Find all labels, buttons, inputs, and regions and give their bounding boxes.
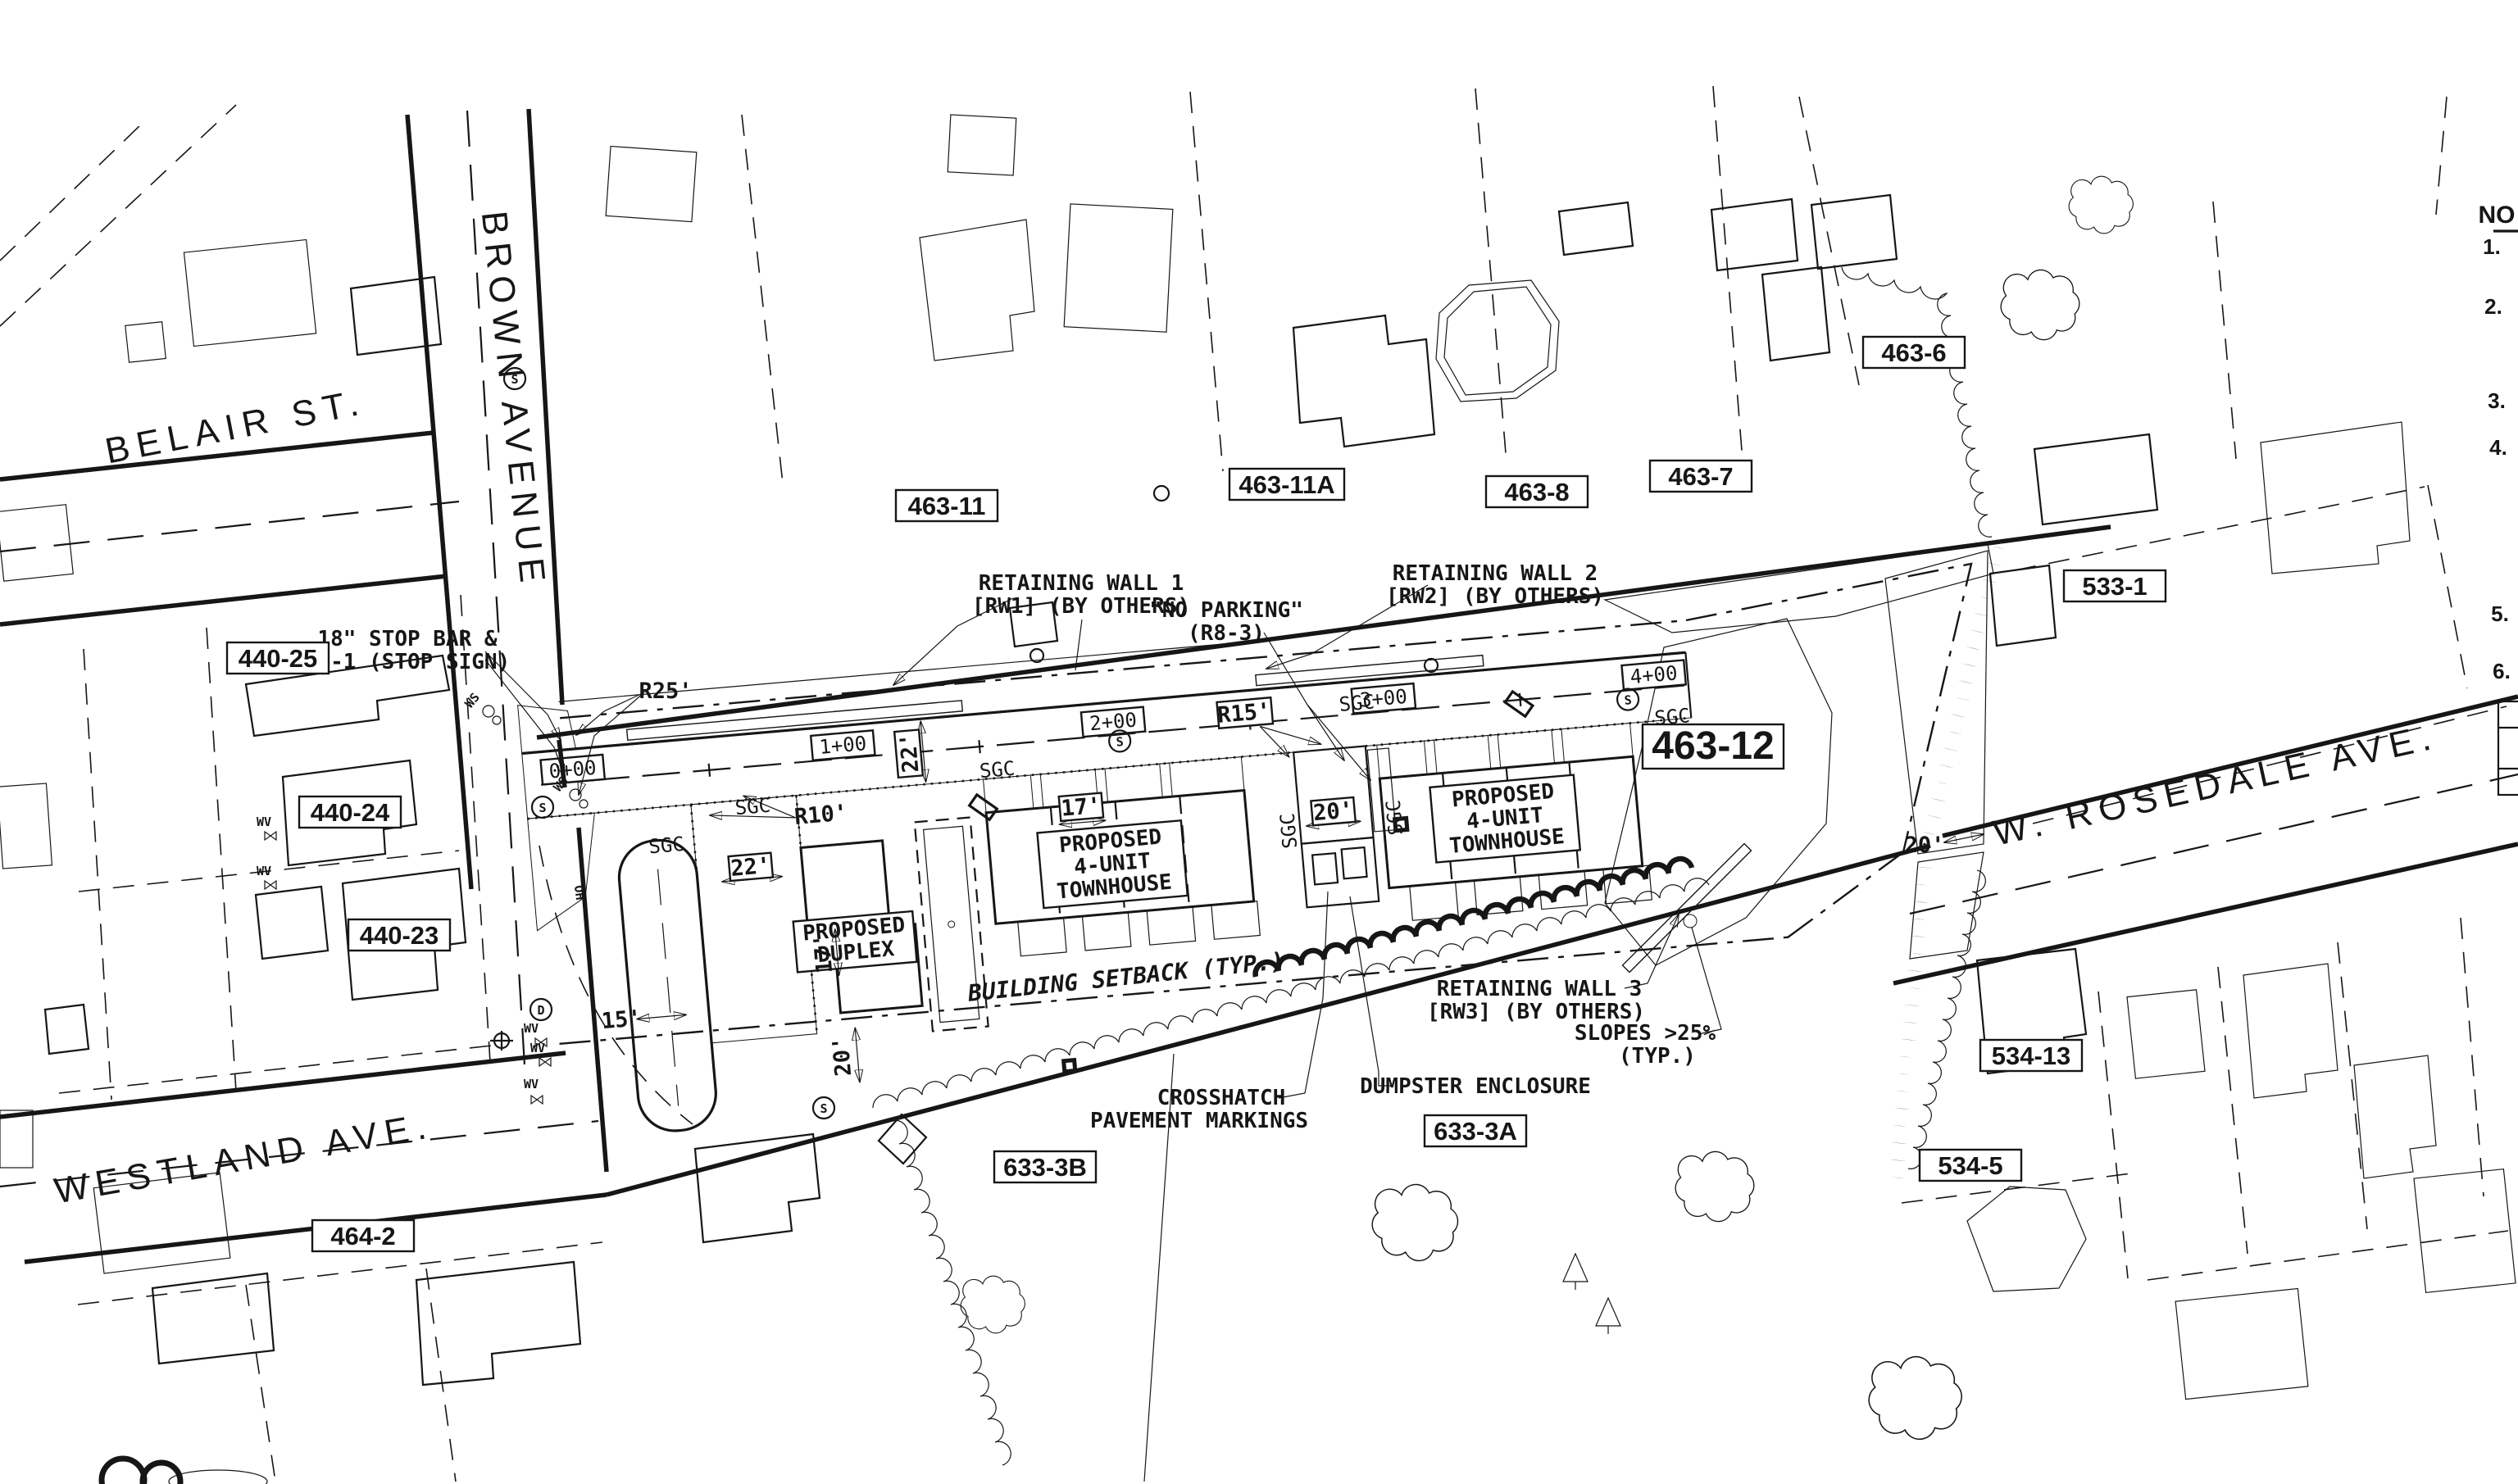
dim-duplex-drive: 17' (809, 933, 838, 974)
parcel-label-463-6: 463-6 (1863, 337, 1965, 368)
svg-text:463-8: 463-8 (1504, 478, 1569, 506)
dumpster-enclosure (1302, 837, 1379, 907)
svg-text:WV: WV (524, 1077, 539, 1091)
note-4: 4. (2489, 435, 2507, 460)
existing-buildings (0, 115, 2516, 1400)
hatched-buildings (45, 195, 2157, 1385)
parcel-label-440-25: 440-25 (227, 642, 329, 674)
parcel-label-534-5: 534-5 (1920, 1150, 2021, 1181)
dim-island-width: 15' (601, 1005, 643, 1034)
parcel-label-534-13: 534-13 (1980, 1040, 2082, 1071)
stop-bar-callout: 18" STOP BAR & R1-1 (STOP SIGN) (305, 627, 565, 787)
dim-crosshatch-width: 20' (1312, 797, 1354, 826)
svg-text:WV: WV (257, 864, 271, 878)
s-manhole-1: S (511, 372, 518, 387)
svg-text:534-5: 534-5 (1938, 1151, 2002, 1180)
s-manhole-4: S (539, 801, 546, 815)
svg-text:440-25: 440-25 (239, 644, 318, 673)
hydrant (490, 1031, 513, 1051)
sgc-2: SGC (648, 833, 685, 859)
sgc-3: SGC (979, 757, 1016, 783)
note-5: 5. (2491, 601, 2509, 626)
bead-chain (1895, 547, 1998, 1190)
parcel-label-633-3b: 633-3B (994, 1151, 1096, 1182)
stop-bar-line2: R1-1 (STOP SIGN) (305, 650, 510, 674)
street-brown: BROWN AVENUE (474, 209, 553, 592)
parcel-label-533-1: 533-1 (2064, 570, 2166, 601)
dumpster-label: DUMPSTER ENCLOSURE (1360, 1074, 1591, 1099)
stop-bar-line1: 18" STOP BAR & (317, 627, 497, 651)
svg-text:WS: WS (461, 690, 482, 710)
slopes-line2: (TYP.) (1619, 1044, 1696, 1069)
parcel-label-440-23: 440-23 (348, 919, 450, 951)
rw2-line1: RETAINING WALL 2 (1393, 561, 1598, 586)
rw2-line2: [RW2] (BY OTHERS) (1386, 584, 1604, 609)
dim-drive-width: 22' (895, 732, 924, 774)
radius-r15: R15' (1216, 698, 1271, 728)
water-service-1: WS (461, 690, 501, 724)
parcel-label-463-11a: 463-11A (1229, 469, 1344, 500)
parcel-label-464-2: 464-2 (312, 1220, 414, 1251)
street-belair: BELAIR ST. (102, 382, 369, 472)
note-1: 1. (2483, 234, 2501, 259)
crosshatch-line2: PAVEMENT MARKINGS (1090, 1109, 1308, 1133)
station-2: 2+00 (1089, 709, 1138, 736)
note-6: 6. (2493, 659, 2511, 683)
svg-text:463-12: 463-12 (1652, 724, 1774, 768)
svg-text:463-6: 463-6 (1881, 338, 1946, 367)
rw3-line1: RETAINING WALL 3 (1437, 977, 1642, 1001)
crosshatch-line1: CROSSHATCH (1157, 1086, 1286, 1110)
svg-text:463-11A: 463-11A (1239, 470, 1334, 499)
building-setback-label: BUILDING SETBACK (TYP.) (966, 947, 1285, 1007)
svg-text:534-13: 534-13 (1992, 1042, 2071, 1070)
no-parking-line2: (R8-3) (1188, 621, 1265, 646)
svg-text:464-2: 464-2 (330, 1222, 395, 1250)
station-1: 1+00 (818, 732, 867, 759)
parcel-label-633-3a: 633-3A (1425, 1115, 1526, 1146)
no-parking-line1: "NO PARKING" (1149, 598, 1303, 623)
svg-text:463-11: 463-11 (908, 492, 986, 520)
dim-duplex-setback: 20' (828, 1035, 857, 1077)
station-4: 4+00 (1629, 661, 1679, 688)
street-westland: WESTLAND AVE. (52, 1105, 437, 1212)
s-manhole-5: S (820, 1101, 827, 1116)
note-2: 2. (2484, 294, 2502, 319)
slopes-line1: SLOPES >25% (1575, 1021, 1716, 1046)
oh-line-label: OH (571, 884, 588, 901)
parcel-label-463-11: 463-11 (896, 490, 998, 521)
dim-east-setback: 20' (1905, 833, 1945, 858)
legend-table (2498, 701, 2518, 795)
svg-text:533-1: 533-1 (2082, 572, 2147, 601)
parcel-label-463-7: 463-7 (1650, 461, 1752, 492)
note-3: 3. (2488, 388, 2506, 413)
svg-text:WV: WV (257, 815, 271, 829)
street-rosedale: W. ROSEDALE AVE. (1989, 716, 2441, 854)
s-manhole-3: S (1624, 692, 1633, 708)
crosshatch-pavement-area (1293, 746, 1373, 843)
utility-symbols: S S S D WS WS WV WV WV WV WV OH (257, 368, 834, 1119)
svg-text:WV: WV (524, 1021, 539, 1036)
s-manhole-2: S (1116, 734, 1125, 750)
townhouse-left-label: PROPOSED 4-UNIT TOWNHOUSE (1037, 820, 1187, 908)
svg-text:440-23: 440-23 (360, 921, 439, 950)
sgc-4: SGC (1338, 690, 1375, 716)
setback-line-north (560, 620, 1687, 718)
svg-text:633-3B: 633-3B (1003, 1153, 1087, 1182)
svg-text:440-24: 440-24 (311, 798, 390, 827)
svg-text:633-3A: 633-3A (1434, 1117, 1517, 1146)
sgc-1: SGC (734, 794, 772, 820)
radius-r25: R25' (639, 678, 692, 704)
logo-partial (102, 1459, 267, 1484)
parcel-label-463-8: 463-8 (1486, 476, 1588, 507)
svg-text:WV: WV (530, 1041, 545, 1055)
parcel-label-463-12: 463-12 (1643, 724, 1784, 769)
parcel-label-440-24: 440-24 (299, 796, 401, 828)
radius-r10: R10' (793, 800, 848, 830)
dim-stall-depth: 17' (1060, 793, 1102, 822)
svg-text:463-7: 463-7 (1668, 462, 1733, 491)
site-plan-sheet: 0+00 1+00 2+00 3+00 4+00 (0, 0, 2518, 1484)
notes-heading: NO (2479, 202, 2516, 229)
d-manhole-1: D (537, 1003, 544, 1018)
townhouse-right-label: PROPOSED 4-UNIT TOWNHOUSE (1429, 775, 1579, 863)
proposed-site: 0+00 1+00 2+00 3+00 4+00 (518, 597, 1797, 1141)
sgc-6: SGC (1276, 812, 1302, 850)
dim-aisle-width: 22' (729, 853, 771, 882)
rw1-line1: RETAINING WALL 1 (979, 571, 1184, 596)
